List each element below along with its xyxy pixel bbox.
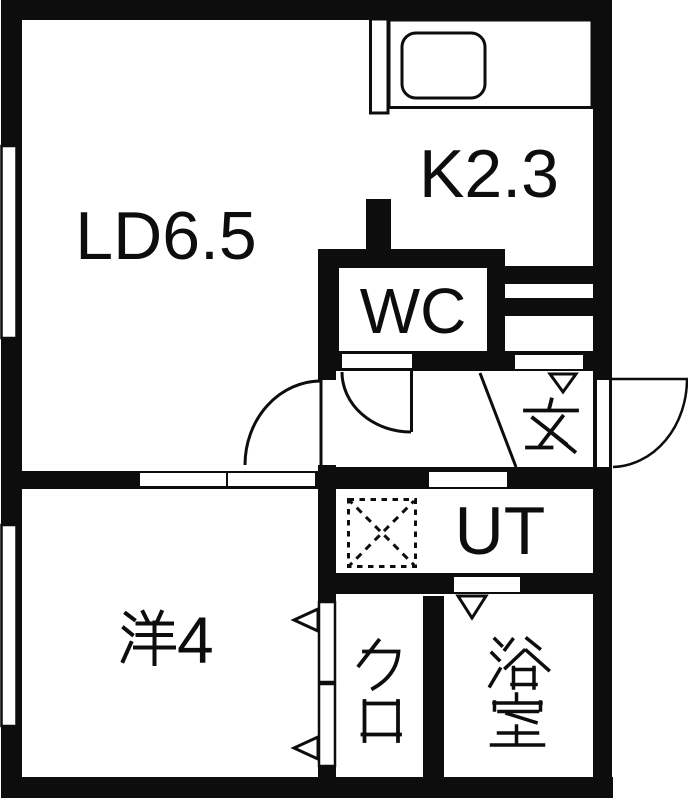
- svg-text:4: 4: [177, 603, 214, 677]
- svg-text:UT: UT: [455, 493, 546, 569]
- svg-text:K2.3: K2.3: [419, 136, 559, 212]
- svg-text:LD6.5: LD6.5: [75, 198, 256, 274]
- svg-text:WC: WC: [360, 275, 467, 347]
